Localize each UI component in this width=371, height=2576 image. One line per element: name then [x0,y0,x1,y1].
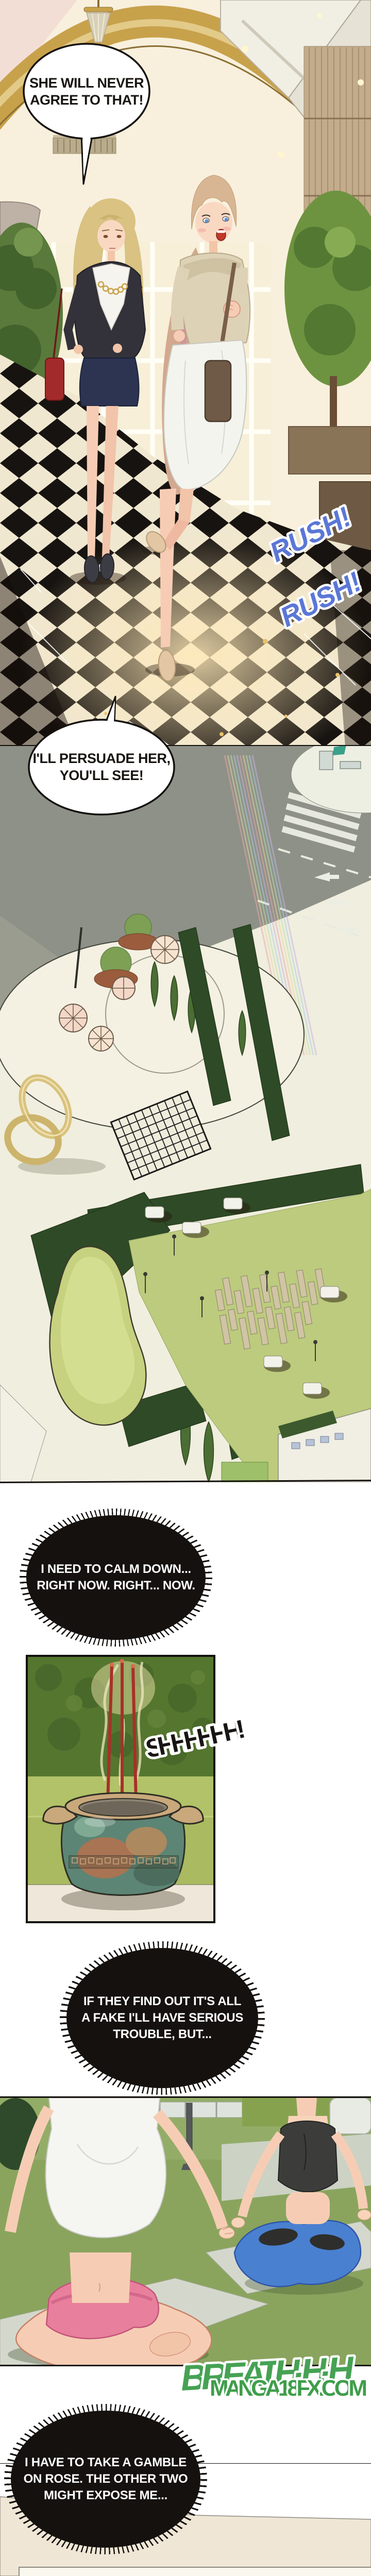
dialogue-1: SHE WILL NEVER AGREE TO THAT! [29,75,144,109]
thought-text-fake: IF THEY FIND OUT IT'S ALL A FAKE I'LL HA… [81,1993,243,2043]
white-sports-top [46,2098,166,2238]
dialogue-2: I'LL PERSUADE HER, YOU'LL SEE! [33,750,171,784]
webtoon-page: RUSH! RUSH! [0,0,371,2576]
thought-bubble-fake: IF THEY FIND OUT IT'S ALL A FAKE I'LL HA… [60,1941,265,2095]
panel-aerial-plaza [0,746,371,1482]
sfx-shh-layer: SHHHHHH! [0,1674,371,1803]
thought-bubble-calm: I NEED TO CALM DOWN... RIGHT NOW. RIGHT.… [20,1509,212,1647]
thought-text-calm: I NEED TO CALM DOWN... RIGHT NOW. RIGHT.… [37,1561,195,1594]
sfx-shhhhh: SHHHHHH! [143,1714,248,1764]
thought-text-gamble: I HAVE TO TAKE A GAMBLE ON ROSE. THE OTH… [24,2454,188,2504]
black-sports-bra [278,2121,338,2192]
floor-object [19,2567,371,2576]
panel-yoga [0,2098,371,2365]
site-watermark: MANGA18FX.COM [210,2376,367,2401]
sfx-breath-layer: BREATH-H-H MANGA18FX.COM [0,2334,371,2416]
thought-bubble-gamble: I HAVE TO TAKE A GAMBLE ON ROSE. THE OTH… [4,2404,207,2554]
speech-bubble-1 [0,0,371,746]
